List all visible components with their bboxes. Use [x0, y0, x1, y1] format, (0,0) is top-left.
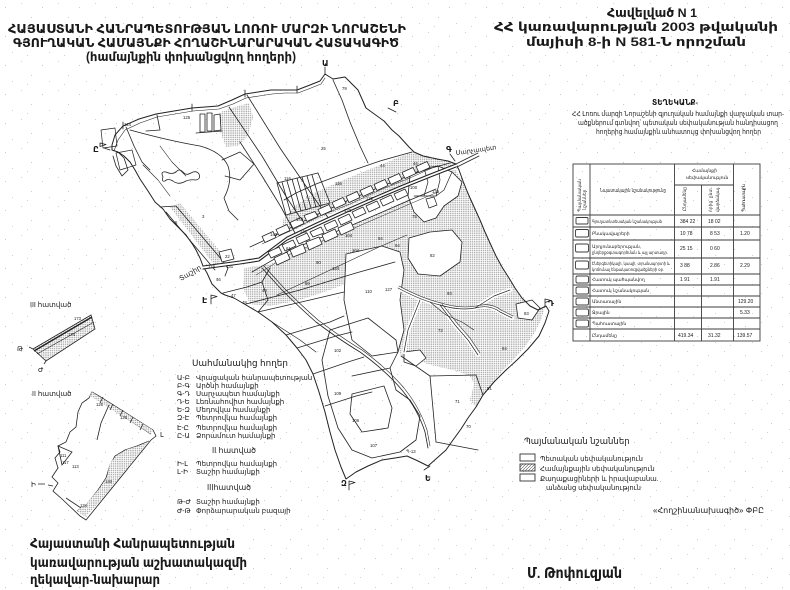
svg-text:124: 124	[124, 122, 132, 127]
svg-text:Բ: Բ	[393, 99, 399, 108]
svg-text:Էներգետիկայի, կապի, տրանսպորտի: Էներգետիկայի, կապի, տրանսպորտի և	[592, 261, 671, 266]
svg-text:Լ: Լ	[160, 432, 164, 439]
svg-text:Ա: Ա	[322, 59, 329, 68]
svg-text:Գ-Դ: Գ-Դ	[177, 391, 191, 398]
svg-text:25 15: 25 15	[680, 246, 693, 252]
svg-text:128: 128	[120, 415, 128, 420]
svg-text:136: 136	[432, 189, 440, 194]
svg-text:Դ: Դ	[548, 299, 554, 308]
svg-text:Արդյունաբերության,: Արդյունաբերության,	[592, 244, 641, 249]
svg-text:1.91: 1.91	[710, 277, 720, 283]
svg-text:սեփականություն: սեփականություն	[686, 175, 729, 180]
svg-text:IIIհատված: IIIհատված	[207, 483, 251, 492]
svg-text:անձանց սեփականություն: անձանց սեփականություն	[546, 485, 641, 492]
svg-text:131: 131	[226, 264, 234, 269]
svg-text:102: 102	[334, 348, 342, 353]
svg-text:Հայաստանի Հանրապետության: Հայաստանի Հանրապետության	[30, 536, 235, 551]
svg-text:հողերից համայնքին անհատույց փո: հողերից համայնքին անհատույց փոխանցվող հո…	[596, 129, 761, 136]
svg-text:Պահուստային: Պահուստային	[741, 184, 746, 212]
svg-text:կառավարության աշխատակազմի: կառավարության աշխատակազմի	[30, 555, 247, 570]
svg-text:Է-Ը: Է-Ը	[177, 425, 189, 432]
svg-text:III հատված: III հատված	[30, 302, 71, 309]
svg-text:419.34: 419.34	[678, 333, 694, 339]
svg-text:Արծնի համայնքի: Արծնի համայնքի	[196, 383, 259, 390]
svg-text:Պահուստային: Պահուստային	[592, 321, 626, 326]
svg-text:123: 123	[344, 208, 352, 213]
svg-text:ՏԵՂԵԿԱՆՔ-: ՏԵՂԵԿԱՆՔ-	[652, 98, 699, 107]
svg-text:64: 64	[395, 243, 400, 248]
svg-text:48: 48	[242, 300, 247, 305]
svg-text:90: 90	[316, 260, 321, 265]
svg-text:75: 75	[412, 214, 417, 219]
svg-text:Հավելված N 1: Հավելված N 1	[607, 6, 697, 20]
svg-text:44: 44	[380, 163, 385, 168]
svg-text:111: 111	[60, 453, 67, 458]
svg-text:նշաններ: նշաններ	[582, 189, 587, 211]
svg-text:Ե: Ե	[425, 474, 431, 483]
svg-text:Նպատակային նշանակությունը: Նպատակային նշանակությունը	[600, 188, 666, 194]
svg-text:25: 25	[321, 146, 326, 151]
svg-text:8 53: 8 53	[710, 231, 720, 237]
svg-text:133: 133	[105, 479, 113, 484]
svg-text:31.32: 31.32	[708, 333, 721, 339]
svg-text:104: 104	[345, 233, 353, 238]
svg-text:71: 71	[455, 399, 460, 404]
svg-text:82: 82	[430, 253, 435, 258]
svg-text:Գյուղատնտեսական նշանակության: Գյուղատնտեսական նշանակության	[592, 219, 662, 224]
svg-text:Լեռնահովիտ համայնքի: Լեռնահովիտ համայնքի	[196, 399, 284, 406]
svg-text:Գ: Գ	[446, 145, 452, 154]
svg-text:Ի-Լ: Ի-Լ	[177, 461, 188, 468]
svg-text:ածքներում գտնվող՝ պետական սեփա: ածքներում գտնվող՝ պետական սեփականության …	[578, 119, 779, 127]
svg-text:որից՝ ընտ.: որից՝ ընտ.	[708, 187, 713, 212]
svg-text:Տաշիր համայնքի: Տաշիր համայնքի	[196, 469, 260, 476]
svg-text:384 22: 384 22	[680, 219, 696, 225]
svg-text:Ը: Ը	[93, 145, 99, 154]
svg-text:Լ-Ի: Լ-Ի	[177, 469, 188, 476]
svg-text:143: 143	[270, 232, 278, 237]
svg-text:49: 49	[262, 288, 267, 293]
svg-text:(համայնքին փոխանցվող հողերի): (համայնքին փոխանցվող հողերի)	[86, 50, 296, 64]
svg-text:Քաղաքացիների և իրավաբանա.: Քաղաքացիների և իրավաբանա.	[540, 476, 659, 483]
svg-text:Սարչապետ համայնքի: Սարչապետ համայնքի	[196, 391, 280, 398]
svg-text:Պետրովկա համայնքի: Պետրովկա համայնքի	[196, 425, 277, 432]
svg-text:Անտառային: Անտառային	[592, 299, 621, 304]
svg-text:Է: Է	[202, 296, 207, 305]
svg-text:Սահմանակից հողեր: Սահմանակից հողեր	[192, 358, 288, 368]
svg-text:ՀՀ Լոռու մարզի Նորաշենի գյուղա: ՀՀ Լոռու մարզի Նորաշենի գյուղական համայն…	[572, 111, 784, 118]
svg-text:մայիսի 8-ի N 581-Ն որոշման: մայիսի 8-ի N 581-Ն որոշման	[526, 35, 746, 49]
svg-text:Ա-Բ: Ա-Բ	[177, 375, 190, 382]
svg-text:Ի: Ի	[31, 482, 36, 489]
svg-text:0 60: 0 60	[710, 246, 720, 252]
svg-text:կոմունալ ենթակառուցվածքների օբ: կոմունալ ենթակառուցվածքների օբ.	[592, 267, 664, 272]
svg-text:Մեդովկա համայնքի: Մեդովկա համայնքի	[196, 407, 270, 414]
svg-text:Ձորամուտ համայնքի: Ձորամուտ համայնքի	[196, 433, 275, 440]
svg-text:Ընդամենը: Ընդամենը	[682, 187, 687, 211]
svg-text:ղեկավար-նախարար: ղեկավար-նախարար	[30, 572, 160, 587]
svg-text:ընդերքօգտագործման և այլ արտադր: ընդերքօգտագործման և այլ արտադր.	[592, 250, 668, 255]
svg-text:79: 79	[342, 86, 347, 91]
svg-text:18 02: 18 02	[708, 219, 721, 225]
svg-text:II հատված: II հատված	[32, 391, 72, 398]
svg-text:72: 72	[438, 328, 443, 333]
svg-text:44: 44	[413, 161, 418, 166]
svg-text:2.29: 2.29	[740, 263, 750, 269]
svg-text:5.33: 5.33	[740, 310, 750, 316]
svg-text:Զ: Զ	[341, 479, 347, 488]
svg-text:Զ-Է: Զ-Է	[177, 415, 190, 422]
svg-text:Պ-13: Պ-13	[406, 449, 416, 454]
svg-text:Ջրային: Ջրային	[592, 310, 610, 315]
svg-text:134: 134	[80, 503, 88, 508]
svg-text:94: 94	[378, 236, 383, 241]
svg-text:84: 84	[502, 346, 507, 351]
svg-text:140: 140	[296, 217, 304, 222]
svg-text:110: 110	[365, 289, 372, 294]
svg-text:134: 134	[332, 266, 340, 271]
svg-text:վարձակալ.: վարձակալ.	[715, 187, 720, 212]
svg-text:Թ: Թ	[17, 346, 23, 353]
svg-text:129.20: 129.20	[738, 299, 754, 305]
svg-text:116: 116	[284, 176, 291, 181]
svg-text:Փորձարարական բազայի: Փորձարարական բազայի	[196, 508, 291, 515]
svg-text:Պետրովկա համայնքի: Պետրովկա համայնքի	[196, 415, 277, 422]
svg-text:Ընդամենը: Ընդամենը	[592, 333, 617, 338]
svg-text:Պետրովկա համայնքի: Պետրովկա համայնքի	[196, 461, 277, 468]
svg-text:125: 125	[183, 115, 191, 120]
svg-text:106: 106	[352, 418, 360, 423]
svg-text:Հատուկ պահպանվող: Հատուկ պահպանվող	[592, 277, 645, 282]
svg-text:Բ-Գ: Բ-Գ	[177, 383, 190, 390]
svg-text:Ժ-Թ: Ժ-Թ	[177, 508, 191, 515]
svg-text:22: 22	[225, 254, 230, 259]
svg-text:1 91: 1 91	[680, 277, 690, 283]
svg-text:ԳՅՈՒՂԱԿԱՆ ՀԱՄԱՅՆՔԻ ՀՈՂԱՇԻՆԱՐԱՐ: ԳՅՈՒՂԱԿԱՆ ՀԱՄԱՅՆՔԻ ՀՈՂԱՇԻՆԱՐԱՐԱԿԱՆ ՀԱՏԱԿ…	[13, 36, 399, 50]
svg-text:119: 119	[208, 264, 215, 269]
svg-text:1.20: 1.20	[740, 231, 750, 237]
svg-text:Ը-Ա: Ը-Ա	[177, 433, 190, 440]
svg-text:Հատուկ նշանակության: Հատուկ նշանակության	[592, 288, 649, 293]
svg-text:81: 81	[487, 386, 492, 391]
svg-text:59: 59	[305, 281, 310, 286]
svg-text:10 78: 10 78	[680, 231, 693, 237]
svg-text:Տաշիր համայնքի: Տաշիր համայնքի	[196, 499, 260, 506]
svg-text:61: 61	[286, 246, 291, 251]
svg-text:Թ-Ժ: Թ-Ժ	[177, 499, 191, 506]
svg-text:Դ-Ե: Դ-Ե	[177, 399, 190, 406]
svg-text:ՀՀ կառավարության 2003 թվականի: ՀՀ կառավարության 2003 թվականի	[494, 20, 778, 34]
svg-text:174: 174	[68, 332, 76, 337]
svg-text:2.86: 2.86	[710, 263, 720, 269]
svg-text:46: 46	[216, 277, 221, 282]
svg-text:132: 132	[366, 196, 374, 201]
svg-text:100: 100	[410, 185, 418, 190]
svg-text:Ժ: Ժ	[38, 367, 44, 374]
svg-text:127: 127	[385, 287, 393, 292]
svg-text:Մ. Թոփուզյան: Մ. Թոփուզյան	[527, 565, 622, 582]
svg-text:93: 93	[447, 291, 452, 296]
svg-text:47: 47	[231, 293, 236, 298]
svg-text:126: 126	[96, 402, 104, 407]
svg-text:«Հողշինանախագիծ» ՓԲԸ: «Հողշինանախագիծ» ՓԲԸ	[653, 506, 764, 515]
svg-text:Համայնքային սեփականություն: Համայնքային սեփականություն	[540, 466, 655, 473]
svg-text:107: 107	[370, 443, 378, 448]
svg-text:Բնակավայրերի: Բնակավայրերի	[592, 231, 630, 236]
svg-text:3 88: 3 88	[680, 263, 690, 269]
svg-text:ՀԱՅԱՍՏԱՆԻ ՀԱՆՐԱՊԵՏՈՒԹՅԱՆ ԼՈՌՈՒ: ՀԱՅԱՍՏԱՆԻ ՀԱՆՐԱՊԵՏՈՒԹՅԱՆ ԼՈՌՈՒ ՄԱՐԶԻ ՆՈՐ…	[8, 22, 407, 36]
svg-text:Համայնքի: Համայնքի	[692, 168, 717, 173]
svg-text:141: 141	[300, 229, 308, 234]
svg-text:173: 173	[74, 316, 82, 321]
svg-text:113: 113	[72, 464, 79, 469]
svg-text:Պայմանական նշաններ: Պայմանական նշաններ	[524, 436, 630, 446]
svg-text:116: 116	[335, 181, 342, 186]
svg-text:II հատված: II հատված	[212, 446, 256, 455]
svg-text:83: 83	[524, 311, 529, 316]
svg-text:109: 109	[334, 391, 342, 396]
svg-text:117: 117	[62, 460, 69, 465]
svg-text:Ե-Զ: Ե-Զ	[177, 407, 190, 414]
svg-text:104: 104	[352, 248, 360, 253]
svg-text:70: 70	[466, 424, 471, 429]
svg-text:Վրացական հանրապետության: Վրացական հանրապետության	[196, 375, 312, 382]
svg-text:139.57: 139.57	[737, 333, 753, 339]
svg-text:Պետական սեփականություն: Պետական սեփականություն	[540, 456, 643, 463]
